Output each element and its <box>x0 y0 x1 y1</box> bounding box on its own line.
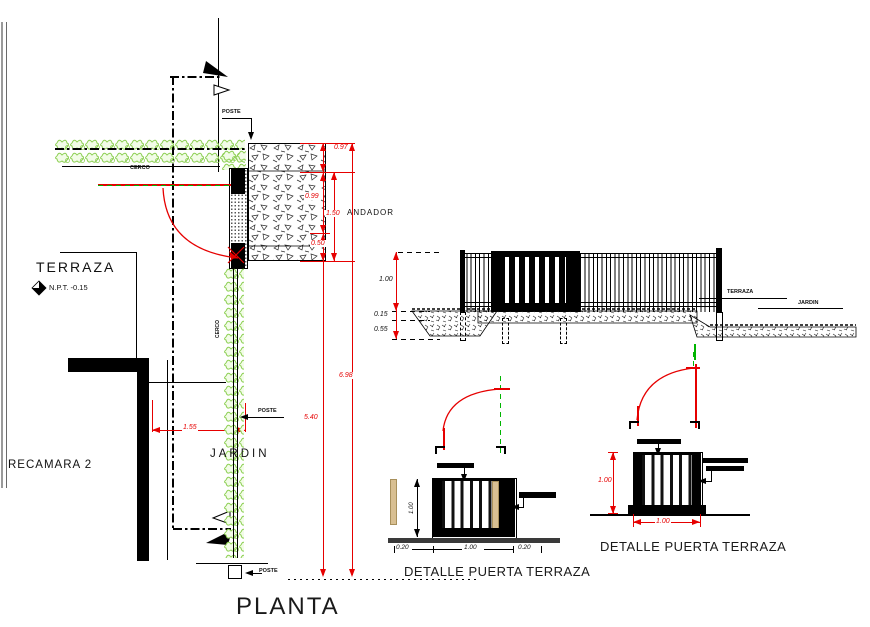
dl-latch-leader-v <box>523 498 524 507</box>
dim-arrow-icon <box>331 253 337 261</box>
dr-height-dim-text: 1.00 <box>597 477 613 484</box>
elev-ext-top <box>398 252 440 253</box>
patio-floor-line <box>149 382 226 383</box>
dim-arrow-icon <box>320 225 326 233</box>
plan-title: PLANTA <box>236 595 340 619</box>
dim-text-540: 5.40 <box>303 414 319 421</box>
dr-width-dim-text: 1.00 <box>655 518 671 525</box>
dim-text-155: 1.55 <box>182 424 198 431</box>
dr-top-rail-callout <box>637 439 681 444</box>
section-marker-top-icon <box>198 58 234 98</box>
recamara-room-label: RECAMARA 2 <box>8 460 92 472</box>
gate-hinge-x-mark <box>226 245 246 265</box>
dim-arrow-icon <box>692 519 700 525</box>
dim-arrow-icon <box>349 143 355 151</box>
elev-post-right <box>716 248 722 312</box>
dl-gate-bottom-band <box>432 528 515 537</box>
cad-drawing-sheet: CERCO POSTE ANDADOR 0.97 0.99 1.50 0.50 … <box>0 0 870 627</box>
dl-title: DETALLE PUERTA TERRAZA <box>404 565 590 578</box>
dl-ground-bar <box>388 538 560 543</box>
dim-arrow-icon <box>152 427 160 433</box>
dr-latch-leader-v <box>711 471 712 481</box>
hedge-corner <box>222 148 246 170</box>
dim-text-698: 6.98 <box>338 372 354 379</box>
dl-wood-post <box>390 479 397 525</box>
dim-line-698 <box>352 143 353 575</box>
dim-arrow-icon <box>633 519 641 525</box>
dim-arrow-icon <box>320 569 326 577</box>
ground-line-plan <box>196 563 268 564</box>
dl-jamb-bracket-left <box>435 446 445 454</box>
dim-arrow-icon <box>320 143 326 151</box>
dr-jamb-bracket-left <box>629 421 639 429</box>
dl-dim-tick <box>513 546 514 553</box>
fence-line-1 <box>233 266 234 558</box>
poste-bottom-arrow-icon <box>245 570 253 576</box>
dl-gate-slats <box>442 481 492 533</box>
elev-dim-015: 0.15 <box>374 311 388 318</box>
dl-dim-100: 1.00 <box>463 545 478 552</box>
poste-mid-label: POSTE <box>258 409 277 415</box>
fence-bars-left <box>462 253 493 312</box>
dr-latch-arrow-icon <box>698 478 706 484</box>
poste-bottom-leader <box>252 573 262 574</box>
poste-bottom-square <box>228 565 242 579</box>
dim-arrow-icon <box>393 303 399 311</box>
poste-top-leader <box>222 118 252 119</box>
elev-terraza-leader <box>699 298 787 299</box>
dim-arrow-icon <box>414 479 420 487</box>
wall-vertical <box>137 358 149 561</box>
dim-arrow-icon <box>414 529 420 537</box>
dim-line-540 <box>323 143 324 575</box>
elev-dim-055: 0.55 <box>374 326 388 333</box>
dr-width-ext-right <box>700 514 701 527</box>
dr-gate-left-stile <box>633 452 642 508</box>
dr-title: DETALLE PUERTA TERRAZA <box>600 540 786 553</box>
elev-ground-hatch <box>405 305 865 345</box>
elev-dim-100: 1.00 <box>379 276 393 283</box>
poste-top-arrow-icon <box>248 132 254 140</box>
dl-height-dim-text: 1.00 <box>409 502 415 514</box>
dl-jamb-bracket-right <box>496 446 506 454</box>
poste-mid-arrow-icon <box>240 414 248 420</box>
terraza-room-label: TERRAZA <box>36 260 115 274</box>
dim-arrow-icon <box>393 331 399 339</box>
dim-arrow-icon <box>320 173 326 181</box>
wall-face-line <box>167 360 168 560</box>
fence-line-2 <box>237 266 238 558</box>
dim-arrow-icon <box>349 569 355 577</box>
elev-gate-slats <box>505 257 566 303</box>
fence-bars-right <box>580 253 718 312</box>
dl-latch-arrow-icon <box>511 504 519 510</box>
dr-jamb-bracket-right <box>690 421 700 429</box>
dim-text-099: 0.99 <box>304 193 320 200</box>
dim-arrow-icon <box>331 172 337 180</box>
dim-arrow-icon <box>610 506 616 514</box>
npt-level-label: N.P.T. -0.15 <box>49 284 88 292</box>
dl-dim-seg1 <box>412 549 462 550</box>
hedge-centerline <box>55 148 245 150</box>
dl-dim-seg2 <box>484 549 513 550</box>
viewport-edge-line <box>1 22 7 488</box>
dim-baseline-dotted <box>288 579 478 580</box>
elev-jardin-leader <box>758 308 843 309</box>
hedge-vertical <box>224 266 244 558</box>
elev-jardin-label: JARDIN <box>798 301 818 307</box>
dr-ground-line <box>590 514 750 516</box>
dr-gate-bottom-band <box>628 505 706 514</box>
elev-dim-line <box>396 252 397 339</box>
wall-horizontal <box>68 358 148 372</box>
dl-door-swing-arc <box>438 383 508 438</box>
dr-door-swing-arc <box>632 362 702 427</box>
dl-latch-callout <box>519 492 556 498</box>
jardin-room-label: JARDIN <box>210 449 270 461</box>
cerco-label: CERCO <box>130 166 150 172</box>
dl-dim-tick <box>541 546 542 553</box>
dim-arrow-icon <box>320 253 326 261</box>
dl-top-rail-callout <box>437 463 474 468</box>
dr-height-dim-line <box>613 452 614 514</box>
dr-gate-slats <box>642 455 692 505</box>
dim-ext-bottom <box>300 261 355 262</box>
terraza-edge-h <box>60 252 137 253</box>
dim-text-050: 0.50 <box>310 240 326 247</box>
dl-dim-020-left: 0.20 <box>395 545 410 552</box>
dim-ext-mid <box>300 172 355 173</box>
dr-rail-callout-1 <box>702 458 748 463</box>
dl-dim-020-right: 0.20 <box>517 545 532 552</box>
level-marker-icon <box>32 281 46 295</box>
dim-text-150: 1.50 <box>325 210 341 217</box>
dl-gate-wood-strip <box>492 481 499 535</box>
terraza-edge-v <box>136 252 137 358</box>
cerco-vertical-label: CERCO <box>216 320 221 338</box>
andador-label: ANDADOR <box>347 209 394 217</box>
dim-arrow-icon <box>610 452 616 460</box>
dim-arrow-icon <box>320 164 326 172</box>
poste-top-label: POSTE <box>222 110 241 116</box>
hedge-horizontal <box>55 137 245 163</box>
elev-terraza-label: TERRAZA <box>727 290 753 296</box>
elev-green-tick <box>694 344 696 360</box>
dim-text-097: 0.97 <box>333 144 349 151</box>
dim-arrow-icon <box>393 252 399 260</box>
elev-post-left <box>460 250 465 312</box>
poste-mid-leader <box>247 417 284 418</box>
